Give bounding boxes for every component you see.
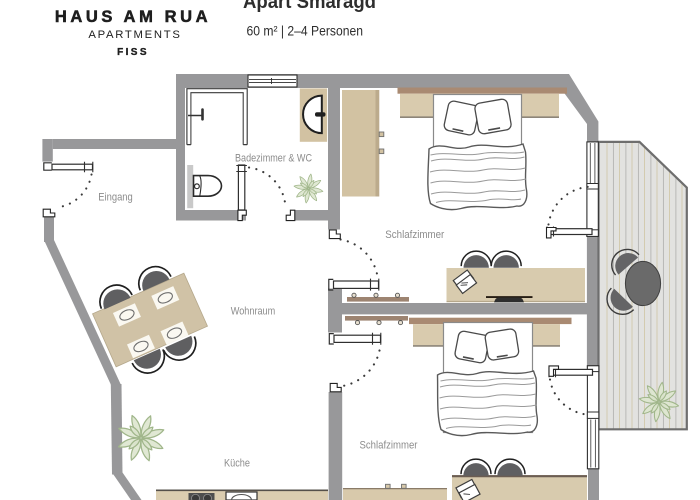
- svg-text:Apart Smaragd: Apart Smaragd: [243, 0, 376, 13]
- svg-text:Badezimmer & WC: Badezimmer & WC: [235, 153, 312, 165]
- svg-text:FISS: FISS: [117, 47, 149, 58]
- svg-text:Küche: Küche: [224, 457, 250, 469]
- svg-text:Wohnraum: Wohnraum: [231, 306, 276, 318]
- svg-text:Schlafzimmer: Schlafzimmer: [360, 439, 418, 451]
- svg-text:Schlafzimmer: Schlafzimmer: [385, 229, 444, 241]
- svg-text:HAUS AM RUA: HAUS AM RUA: [55, 8, 211, 26]
- svg-text:60 m² | 2–4 Personen: 60 m² | 2–4 Personen: [247, 24, 364, 39]
- svg-text:APARTMENTS: APARTMENTS: [88, 29, 181, 41]
- svg-text:Eingang: Eingang: [98, 192, 133, 204]
